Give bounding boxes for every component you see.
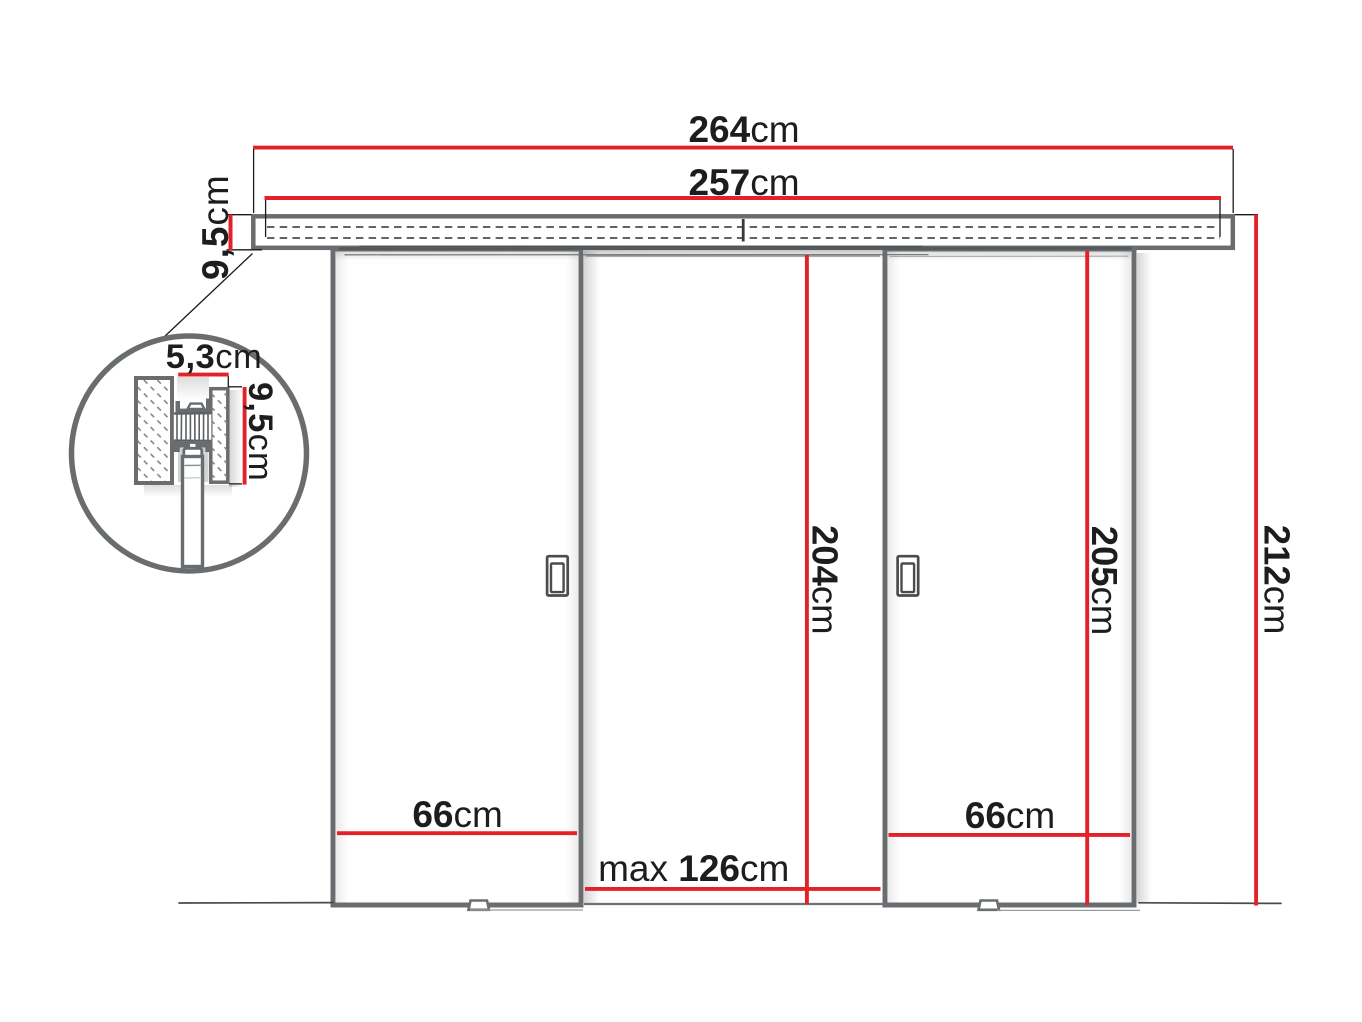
svg-text:5,3cm: 5,3cm (166, 338, 262, 376)
svg-text:264cm: 264cm (688, 109, 799, 150)
svg-text:66cm: 66cm (412, 794, 502, 835)
svg-text:max 126cm: max 126cm (598, 848, 789, 889)
svg-text:9,5cm: 9,5cm (241, 382, 279, 482)
svg-text:205cm: 205cm (1084, 526, 1125, 636)
svg-text:204cm: 204cm (805, 525, 846, 635)
svg-text:257cm: 257cm (688, 162, 799, 203)
svg-text:66cm: 66cm (965, 795, 1055, 836)
svg-text:212cm: 212cm (1257, 525, 1298, 635)
svg-text:9,5cm: 9,5cm (195, 174, 236, 280)
